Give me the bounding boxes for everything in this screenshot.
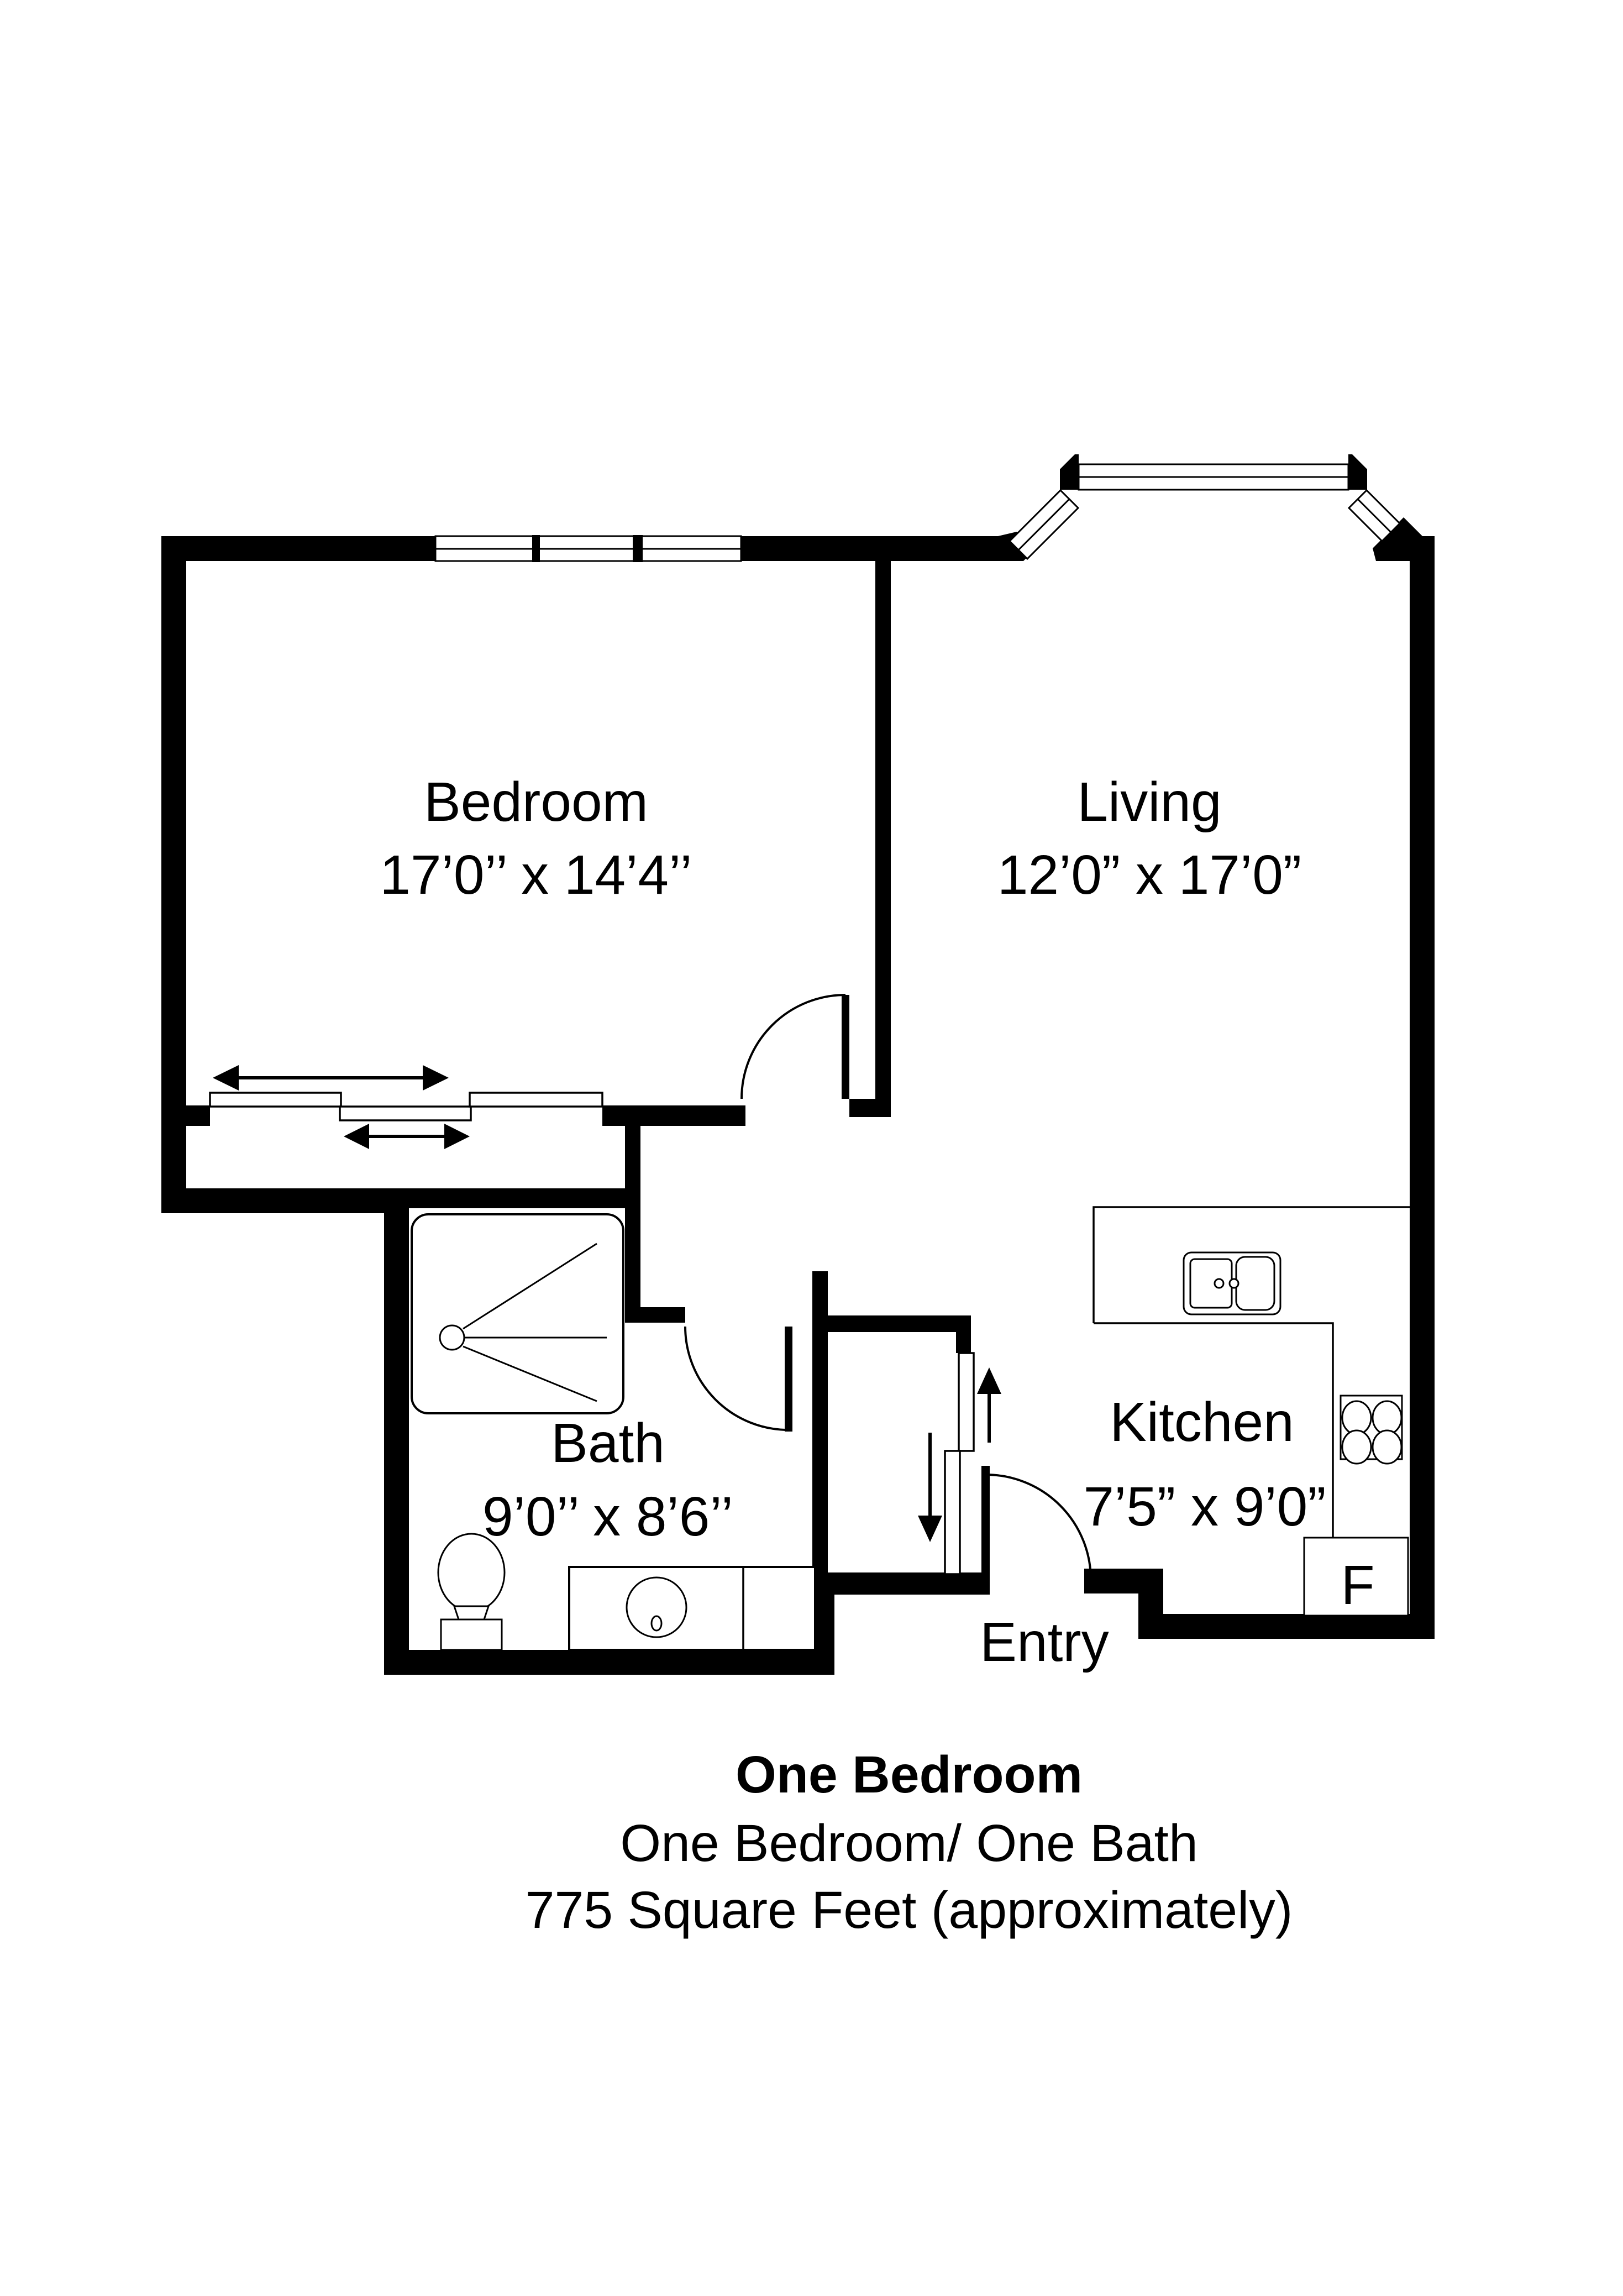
faucet-hole-icon [1230, 1279, 1238, 1288]
bedroom-label: Bedroom [424, 771, 648, 833]
wall [625, 1307, 685, 1323]
shower-icon [412, 1214, 623, 1413]
wall [815, 1595, 834, 1675]
kitchen-sink-basin [1236, 1257, 1274, 1310]
wall [602, 1105, 745, 1126]
arrow-head-icon [918, 1516, 942, 1542]
arrow-head-icon [213, 1065, 239, 1091]
wall [384, 1650, 834, 1675]
arrow-head-icon [423, 1065, 449, 1091]
sliding-door-panel [210, 1093, 341, 1107]
wall [812, 1315, 971, 1332]
wall [161, 536, 186, 1213]
window-mullion [532, 535, 540, 562]
wall [956, 1332, 971, 1353]
arrow-head-icon [444, 1124, 470, 1149]
door-swing-arc [685, 1327, 789, 1430]
floor-plan-svg: Bedroom 17’0’’ x 14’4’’ Living 12’0” x 1… [0, 0, 1623, 2296]
wall [849, 1099, 891, 1117]
arrow-head-icon [977, 1367, 1001, 1394]
floor-plan-page: Bedroom 17’0’’ x 14’4’’ Living 12’0” x 1… [0, 0, 1623, 2296]
burner-icon [1342, 1401, 1371, 1434]
wall [408, 1188, 640, 1208]
fridge-label: F [1341, 1554, 1374, 1616]
wall [625, 1126, 640, 1323]
shower-drain-icon [440, 1325, 464, 1350]
arrow-head-icon [344, 1124, 369, 1149]
caption-subtitle: One Bedroom/ One Bath [620, 1814, 1198, 1873]
kitchen-dims: 7’5” x 9’0” [1083, 1476, 1326, 1538]
toilet-neck-icon [454, 1606, 489, 1619]
sliding-door-panel [340, 1107, 471, 1120]
bay-window-post [1348, 454, 1367, 490]
bay-window-post [1060, 454, 1079, 490]
bath-label: Bath [551, 1412, 665, 1474]
sliding-door-panel [945, 1451, 960, 1574]
living-label: Living [1077, 771, 1221, 833]
wall [186, 1105, 210, 1126]
wall [384, 1188, 409, 1675]
wall [161, 536, 435, 561]
sliding-door-panel [959, 1353, 974, 1451]
living-dims: 12’0” x 17’0” [997, 844, 1301, 906]
wall [875, 561, 891, 1117]
door-leaf [785, 1327, 792, 1432]
door-leaf [842, 995, 849, 1099]
wall [1138, 1614, 1435, 1639]
door-leaf [981, 1466, 990, 1581]
caption-area: 775 Square Feet (approximately) [526, 1881, 1293, 1939]
bath-dims: 9’0’’ x 8’6’’ [482, 1486, 733, 1548]
wall [161, 1188, 409, 1213]
entry-label: Entry [980, 1611, 1109, 1673]
burner-icon [1373, 1401, 1401, 1434]
bedroom-dims: 17’0’’ x 14’4’’ [380, 844, 692, 906]
caption-block: One Bedroom One Bedroom/ One Bath 775 Sq… [526, 1745, 1293, 1939]
burner-icon [1373, 1430, 1401, 1464]
kitchen-label: Kitchen [1110, 1391, 1294, 1453]
wall [812, 1572, 990, 1595]
door-swing-arc [986, 1475, 1091, 1580]
wall [741, 536, 998, 561]
sliding-door-panel [470, 1093, 602, 1107]
caption-title: One Bedroom [736, 1745, 1083, 1804]
wall [1410, 536, 1435, 1639]
door-swing-arc [742, 995, 845, 1099]
window-mullion [633, 535, 643, 562]
faucet-hole-icon [1215, 1279, 1223, 1288]
kitchen-sink-basin [1190, 1259, 1232, 1308]
vanity-counter-icon [569, 1567, 815, 1650]
burner-icon [1342, 1430, 1371, 1464]
sink-drain-icon [652, 1616, 661, 1631]
toilet-tank-icon [441, 1619, 502, 1650]
